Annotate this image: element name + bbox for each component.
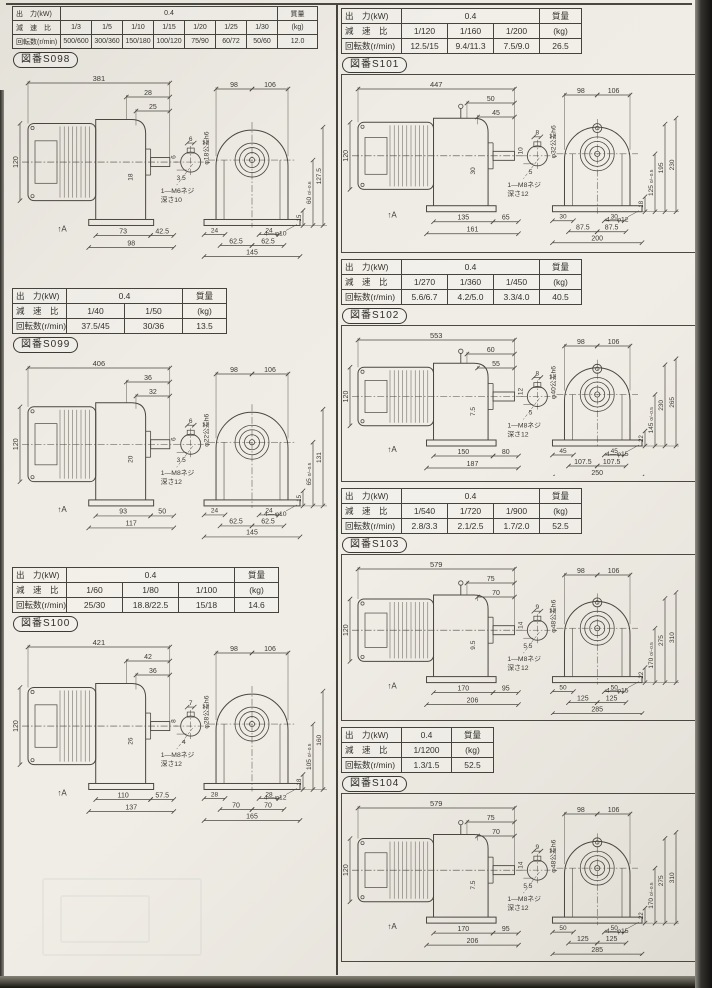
dimension-label: 32 [149, 389, 157, 396]
dimension-label: ↑A [387, 682, 397, 691]
dimension-drawing-box: ↑A3812825120187342.598663.5φ18公差h61—M6ネジ… [12, 69, 336, 272]
figure-number-badge: 図番S103 [342, 537, 407, 553]
dimension-label: 206 [467, 697, 479, 704]
spec-table: 出 力(kW)0.4質量減 速 比1/2701/3601/450(kg)回転数(… [341, 259, 582, 305]
dimension-label: 15 [297, 494, 303, 501]
spec-cell: 1/60 [67, 583, 123, 598]
spec-cell: 1/900 [494, 504, 540, 519]
spec-cell: 30/36 [125, 319, 183, 334]
dimension-label: 1—M6ネジ [161, 187, 195, 195]
figure-number-badge: 図番S099 [13, 337, 78, 353]
dimension-label: 145 [246, 530, 258, 537]
center-height-label: 1250/−0.5 [648, 169, 655, 196]
spec-cell: 1/540 [402, 504, 448, 519]
dimension-label: 8 [536, 370, 540, 377]
dimension-label: 1—M8ネジ [507, 655, 541, 663]
spec-cell: 回転数(r/min) [13, 35, 61, 49]
figure-number-badge: 図番S104 [342, 776, 407, 792]
dimension-label: 30 [470, 167, 477, 175]
dimension-label: 15 [297, 214, 303, 221]
dimension-label: 8 [171, 719, 178, 723]
dimension-label: 1—M8ネジ [161, 751, 195, 759]
dimension-label: 170 [457, 926, 469, 933]
spec-table: 出 力(kW)0.4質量減 速 比1/31/51/101/151/201/251… [12, 6, 318, 49]
dimension-label: 170 [457, 685, 469, 692]
dimension-label: 75 [487, 576, 495, 583]
catalog-section-S101: 出 力(kW)0.4質量減 速 比1/1201/1601/200(kg)回転数(… [341, 8, 697, 253]
dimension-label: 5 [529, 169, 533, 176]
spec-cell: (kg) [540, 275, 582, 290]
spec-cell: 出 力(kW) [342, 728, 402, 743]
spec-cell: 7.5/9.0 [494, 39, 540, 54]
page-edge-right [695, 0, 712, 988]
dimension-label: 406 [93, 359, 106, 368]
center-height-label: 1050/−0.5 [306, 743, 313, 770]
dimension-label: 98 [577, 339, 585, 346]
dimension-label: 深さ12 [507, 189, 528, 198]
dimension-label: 98 [127, 240, 135, 247]
dimension-label: 45 [559, 448, 567, 455]
dimension-label: 160 [316, 734, 323, 745]
center-height-label: 1700/−0.5 [648, 882, 655, 909]
spec-cell: 37.5/45 [67, 319, 125, 334]
dimension-drawing-box: ↑A447504512030135651618105φ32公差h61—M8ネジ深… [341, 74, 697, 253]
dimension-label: 98 [577, 807, 585, 814]
dimension-label: 250 [591, 470, 603, 476]
dimension-label: 5.5 [523, 643, 532, 650]
dimension-label: 98 [230, 82, 238, 89]
dimension-label: 106 [608, 568, 620, 575]
spec-cell: 回転数(r/min) [342, 39, 402, 54]
dimension-label: 1—M8ネジ [507, 895, 541, 903]
dimension-label: 80 [502, 449, 510, 456]
dimension-label: 310 [669, 632, 676, 643]
dimension-label: 137 [125, 804, 137, 811]
spec-cell: 回転数(r/min) [342, 290, 402, 305]
dimension-label: 50 [559, 925, 567, 932]
dimension-label: 7.5 [470, 407, 477, 416]
spec-cell: 4.2/5.0 [448, 290, 494, 305]
gear-motor-drawing: ↑A447504512030135651618105φ32公差h61—M8ネジ深… [343, 80, 679, 245]
spec-cell: 出 力(kW) [342, 260, 402, 275]
spec-cell: 出 力(kW) [13, 289, 67, 304]
dimension-label: 206 [467, 938, 479, 945]
center-height-label: 650/−0.5 [306, 462, 313, 485]
spec-cell: 500/600 [61, 35, 92, 49]
dimension-label: 4—φ10 [264, 511, 287, 518]
spec-cell: 300/360 [92, 35, 123, 49]
spec-cell: 52.5 [540, 519, 582, 534]
dimension-label: 24 [211, 508, 219, 515]
dimension-label: 125 [606, 695, 618, 702]
center-height-label: 1450/−0.5 [648, 407, 655, 434]
dimension-label: 26 [128, 737, 135, 745]
gear-motor-drawing: ↑A57975701207.5170952069145.5φ48公差h61—M8… [343, 799, 679, 956]
dimension-label: 579 [430, 560, 443, 569]
spec-cell: 回転数(r/min) [13, 598, 67, 613]
dimension-label: 14 [517, 621, 524, 629]
spec-cell: 1/270 [402, 275, 448, 290]
dimension-label: 75 [487, 815, 495, 822]
left-column: 出 力(kW)0.4質量減 速 比1/31/51/101/151/201/251… [12, 0, 336, 836]
spec-cell: 2.8/3.3 [402, 519, 448, 534]
spec-cell: 0.4 [402, 728, 452, 743]
dimension-label: 131 [316, 452, 323, 463]
spec-cell: (kg) [278, 21, 318, 35]
dimension-drawing-box: ↑A57975701207.5170952069145.5φ48公差h61—M8… [341, 793, 697, 962]
dimension-label: 4—φ15 [606, 688, 629, 695]
dimension-label: 62.5 [261, 238, 275, 245]
dimension-label: 98 [577, 568, 585, 575]
spec-cell: 12.0 [278, 35, 318, 49]
dimension-label: 4—φ15 [606, 451, 629, 458]
gear-motor-drawing: ↑A42142361202611057.5137784φ28公差h61—M8ネジ… [13, 638, 327, 823]
dimension-label: 73 [119, 228, 127, 235]
dimension-drawing: ↑A42142361202611057.5137784φ28公差h61—M8ネジ… [12, 633, 334, 831]
spec-cell: 18.8/22.5 [123, 598, 179, 613]
spec-cell: 1/40 [67, 304, 125, 319]
spec-cell: 1/450 [494, 275, 540, 290]
gear-motor-drawing: ↑A57975701209.5170952069145.5φ48公差h61—M8… [343, 560, 679, 715]
spec-cell: 60/72 [216, 35, 247, 49]
dimension-label: φ22公差h6 [202, 413, 211, 446]
dimension-label: 7.5 [470, 880, 477, 889]
spec-cell: 1/100 [179, 583, 235, 598]
dimension-label: 42 [144, 654, 152, 661]
dimension-label: 125 [606, 936, 618, 943]
dimension-label: 230 [658, 400, 665, 411]
dimension-label: 8 [536, 130, 540, 137]
spec-cell: 1/10 [123, 21, 154, 35]
dimension-label: 98 [230, 646, 238, 653]
dimension-label: 4—φ12 [264, 794, 287, 801]
spec-cell: 26.5 [540, 39, 582, 54]
dimension-label: 12 [517, 388, 524, 396]
spec-cell: 質量 [235, 568, 279, 583]
center-height-label: 600/−0.6 [306, 181, 313, 204]
spec-table: 出 力(kW)0.4質量減 速 比1/1201/1601/200(kg)回転数(… [341, 8, 582, 54]
dimension-label: 1—M8ネジ [161, 469, 195, 477]
spec-table: 出 力(kW)0.4質量減 速 比1/401/50(kg)回転数(r/min)3… [12, 288, 227, 334]
dimension-label: 62.5 [229, 238, 243, 245]
dimension-label: 145 [246, 249, 258, 256]
center-height-label: 1700/−0.5 [648, 642, 655, 669]
dimension-label: 18 [128, 173, 135, 181]
dimension-label: 28 [144, 90, 152, 97]
dimension-label: φ40公差h6 [548, 366, 557, 399]
spec-cell: 質量 [540, 9, 582, 24]
spec-cell: 12.5/15 [402, 39, 448, 54]
dimension-label: 18 [297, 778, 303, 785]
dimension-label: 120 [343, 864, 350, 876]
gear-motor-drawing: ↑A4063632120209350117663.5φ22公差h61—M8ネジ深… [13, 359, 327, 539]
spec-cell: 1/80 [123, 583, 179, 598]
spec-cell: 出 力(kW) [13, 568, 67, 583]
dimension-label: 42.5 [155, 228, 169, 235]
dimension-label: 1—M8ネジ [507, 422, 541, 430]
dimension-label: 107.5 [574, 459, 592, 466]
dimension-label: 57.5 [155, 792, 169, 799]
catalog-section-S103: 出 力(kW)0.4質量減 速 比1/5401/7201/900(kg)回転数(… [341, 488, 697, 721]
dimension-label: 120 [343, 391, 350, 403]
dimension-drawing: ↑A55360551207.5150801878125φ40公差h61—M8ネジ… [342, 326, 694, 476]
spec-cell: 0.4 [67, 568, 235, 583]
dimension-label: 447 [430, 80, 443, 89]
spec-cell: 50/60 [247, 35, 278, 49]
dimension-label: 187 [467, 461, 479, 468]
dimension-label: 265 [669, 397, 676, 408]
dimension-label: 3.5 [177, 175, 186, 182]
dimension-label: 30 [559, 214, 567, 221]
figure-number-badge: 図番S102 [342, 308, 407, 324]
dimension-label: 70 [264, 802, 272, 809]
dimension-drawing: ↑A447504512030135651618105φ32公差h61—M8ネジ深… [342, 75, 694, 247]
dimension-label: ↑A [387, 445, 397, 454]
dimension-label: 106 [264, 646, 276, 653]
dimension-label: 24 [211, 227, 219, 234]
spec-cell: 13.5 [183, 319, 227, 334]
figure-number-badge: 図番S101 [342, 57, 407, 73]
dimension-label: 6 [189, 136, 193, 143]
spec-cell: 40.5 [540, 290, 582, 305]
spec-cell: 1/20 [185, 21, 216, 35]
dimension-label: 161 [467, 227, 479, 234]
spec-cell: (kg) [235, 583, 279, 598]
spec-table: 出 力(kW)0.4質量減 速 比1/1200(kg)回転数(r/min)1.3… [341, 727, 494, 773]
dimension-label: 120 [13, 438, 20, 450]
page-edge-bottom [0, 976, 712, 988]
spec-cell: 1/200 [494, 24, 540, 39]
dimension-label: 230 [669, 159, 676, 170]
dimension-drawing: ↑A4063632120209350117663.5φ22公差h61—M8ネジ深… [12, 354, 334, 546]
dimension-label: 22 [639, 671, 645, 678]
spec-cell: 出 力(kW) [342, 489, 402, 504]
dimension-label: 6 [171, 155, 178, 159]
spec-cell: 回転数(r/min) [13, 319, 67, 334]
dimension-label: 285 [591, 947, 603, 954]
spec-cell: 15/18 [179, 598, 235, 613]
dimension-label: 120 [13, 720, 20, 732]
dimension-label: 421 [93, 638, 106, 647]
print-bleedthrough [60, 895, 150, 943]
dimension-label: 36 [144, 375, 152, 382]
dimension-label: 98 [230, 367, 238, 374]
dimension-label: 1—M8ネジ [507, 181, 541, 189]
dimension-label: 125 [577, 695, 589, 702]
dimension-label: 20 [128, 455, 135, 463]
dimension-label: 106 [264, 367, 276, 374]
dimension-label: 10 [517, 147, 524, 155]
dimension-label: 106 [608, 88, 620, 95]
column-divider [336, 4, 338, 975]
spec-cell: 質量 [278, 7, 318, 21]
spec-cell: 1.3/1.5 [402, 758, 452, 773]
spec-cell: 2.1/2.5 [448, 519, 494, 534]
spec-cell: 質量 [540, 489, 582, 504]
dimension-label: 5.5 [523, 883, 532, 890]
dimension-drawing-box: ↑A42142361202611057.5137784φ28公差h61—M8ネジ… [12, 633, 336, 836]
dimension-label: 9 [536, 844, 540, 851]
spec-cell: 5.6/6.7 [402, 290, 448, 305]
dimension-label: 553 [430, 331, 443, 340]
spec-cell: 減 速 比 [342, 24, 402, 39]
spec-cell: 1/30 [247, 21, 278, 35]
spec-table: 出 力(kW)0.4質量減 速 比1/601/801/100(kg)回転数(r/… [12, 567, 279, 613]
dimension-label: 70 [492, 590, 500, 597]
dimension-label: 165 [246, 813, 258, 820]
spec-cell: 回転数(r/min) [342, 758, 402, 773]
spec-cell: 1.7/2.0 [494, 519, 540, 534]
dimension-label: 110 [118, 792, 129, 799]
dimension-drawing-box: ↑A4063632120209350117663.5φ22公差h61—M8ネジ深… [12, 354, 336, 551]
dimension-label: 62.5 [261, 519, 275, 526]
spec-cell: 減 速 比 [342, 743, 402, 758]
dimension-label: 70 [232, 802, 240, 809]
spec-cell: (kg) [540, 504, 582, 519]
catalog-section-S099: 出 力(kW)0.4質量減 速 比1/401/50(kg)回転数(r/min)3… [12, 288, 336, 551]
spec-cell: 25/30 [67, 598, 123, 613]
spec-cell: 1/3 [61, 21, 92, 35]
dimension-label: 深さ12 [507, 430, 528, 439]
spec-cell: 1/5 [92, 21, 123, 35]
dimension-label: 95 [502, 685, 510, 692]
catalog-section-S104: 出 力(kW)0.4質量減 速 比1/1200(kg)回転数(r/min)1.3… [341, 727, 697, 962]
dimension-label: 55 [492, 361, 500, 368]
dimension-label: 106 [264, 82, 276, 89]
dimension-label: 50 [559, 684, 567, 691]
dimension-label: 125 [577, 936, 589, 943]
dimension-label: 95 [502, 926, 510, 933]
spec-cell: 9.4/11.3 [448, 39, 494, 54]
spec-cell: 回転数(r/min) [342, 519, 402, 534]
dimension-label: 36 [149, 668, 157, 675]
dimension-label: 3.5 [177, 457, 186, 464]
spec-cell: 0.4 [402, 489, 540, 504]
dimension-label: 深さ12 [161, 477, 182, 486]
dimension-label: 7 [189, 700, 193, 707]
dimension-label: 4—φ10 [264, 230, 287, 237]
spec-cell: 1/160 [448, 24, 494, 39]
dimension-label: 93 [119, 509, 127, 516]
dimension-label: 200 [591, 236, 603, 243]
dimension-label: 28 [211, 791, 219, 798]
dimension-label: ↑A [387, 211, 397, 220]
spec-cell: 0.4 [402, 9, 540, 24]
dimension-label: 6 [171, 437, 178, 441]
dimension-label: 285 [591, 706, 603, 713]
spec-cell: 1/720 [448, 504, 494, 519]
dimension-label: φ28公差h6 [202, 695, 211, 728]
dimension-drawing-box: ↑A57975701209.5170952069145.5φ48公差h61—M8… [341, 554, 697, 721]
spec-table: 出 力(kW)0.4質量減 速 比1/5401/7201/900(kg)回転数(… [341, 488, 582, 534]
spec-cell: 1/15 [154, 21, 185, 35]
dimension-label: φ32公差h6 [548, 125, 557, 158]
dimension-label: 70 [492, 829, 500, 836]
dimension-label: 120 [13, 156, 20, 168]
dimension-label: 25 [149, 104, 157, 111]
dimension-label: 5 [529, 410, 533, 417]
dimension-label: 深さ12 [507, 663, 528, 672]
spec-cell: 0.4 [61, 7, 278, 21]
dimension-label: 45 [492, 110, 500, 117]
catalog-section-S100: 出 力(kW)0.4質量減 速 比1/601/801/100(kg)回転数(r/… [12, 567, 336, 836]
dimension-label: 98 [577, 88, 585, 95]
spec-cell: 質量 [452, 728, 494, 743]
spec-cell: 質量 [183, 289, 227, 304]
spec-cell: 100/120 [154, 35, 185, 49]
dimension-label: 22 [639, 435, 645, 442]
dimension-label: 117 [126, 521, 137, 528]
dimension-label: ↑A [57, 224, 67, 233]
dimension-label: 9 [536, 604, 540, 611]
dimension-label: 4—φ12 [606, 217, 629, 224]
spec-cell: (kg) [540, 24, 582, 39]
dimension-label: 60 [487, 347, 495, 354]
dimension-label: 50 [158, 509, 166, 516]
dimension-drawing: ↑A57975701209.5170952069145.5φ48公差h61—M8… [342, 555, 694, 715]
spec-cell: 1/25 [216, 21, 247, 35]
dimension-label: 127.5 [316, 168, 323, 185]
spec-cell: 75/90 [185, 35, 216, 49]
spec-cell: 減 速 比 [342, 275, 402, 290]
catalog-section-S102: 出 力(kW)0.4質量減 速 比1/2701/3601/450(kg)回転数(… [341, 259, 697, 482]
dimension-label: 381 [93, 74, 106, 83]
spec-cell: 1/120 [402, 24, 448, 39]
catalog-page: 出 力(kW)0.4質量減 速 比1/31/51/101/151/201/251… [0, 0, 712, 988]
dimension-label: 120 [343, 624, 350, 636]
spec-cell: 14.6 [235, 598, 279, 613]
dimension-drawing: ↑A57975701207.5170952069145.5φ48公差h61—M8… [342, 794, 694, 956]
dimension-label: 深さ12 [507, 903, 528, 912]
figure-number-badge: 図番S098 [13, 52, 78, 68]
spec-cell: 1/50 [125, 304, 183, 319]
dimension-label: 4—φ15 [606, 928, 629, 935]
dimension-drawing-box: ↑A55360551207.5150801878125φ40公差h61—M8ネジ… [341, 325, 697, 482]
dimension-label: 135 [457, 215, 469, 222]
dimension-label: 106 [608, 339, 620, 346]
dimension-label: φ18公差h6 [202, 131, 211, 164]
dimension-label: 120 [343, 150, 350, 162]
spec-cell: (kg) [183, 304, 227, 319]
spec-cell: 出 力(kW) [13, 7, 61, 21]
dimension-label: φ48公差h6 [548, 839, 557, 872]
gear-motor-drawing: ↑A3812825120187342.598663.5φ18公差h61—M6ネジ… [13, 74, 327, 259]
dimension-label: 107.5 [603, 459, 621, 466]
dimension-label: 深さ12 [161, 759, 182, 768]
right-column: 出 力(kW)0.4質量減 速 比1/1201/1601/200(kg)回転数(… [341, 0, 697, 962]
dimension-label: 22 [639, 912, 645, 919]
spec-cell: 減 速 比 [13, 583, 67, 598]
spec-cell: 1/1200 [402, 743, 452, 758]
spec-cell: 減 速 比 [342, 504, 402, 519]
spec-cell: 減 速 比 [13, 304, 67, 319]
dimension-label: 65 [502, 215, 510, 222]
dimension-label: ↑A [57, 788, 67, 797]
spec-cell: 52.5 [452, 758, 494, 773]
spec-cell: 0.4 [67, 289, 183, 304]
dimension-drawing: ↑A3812825120187342.598663.5φ18公差h61—M6ネジ… [12, 69, 334, 267]
dimension-label: 275 [658, 875, 665, 886]
dimension-label: 18 [639, 200, 645, 207]
dimension-label: ↑A [57, 505, 67, 514]
dimension-label: 14 [517, 861, 524, 869]
dimension-label: 275 [658, 635, 665, 646]
dimension-label: φ48公差h6 [548, 599, 557, 632]
figure-number-badge: 図番S100 [13, 616, 78, 632]
dimension-label: 6 [189, 418, 193, 425]
spec-cell: 質量 [540, 260, 582, 275]
dimension-label: 579 [430, 799, 443, 808]
